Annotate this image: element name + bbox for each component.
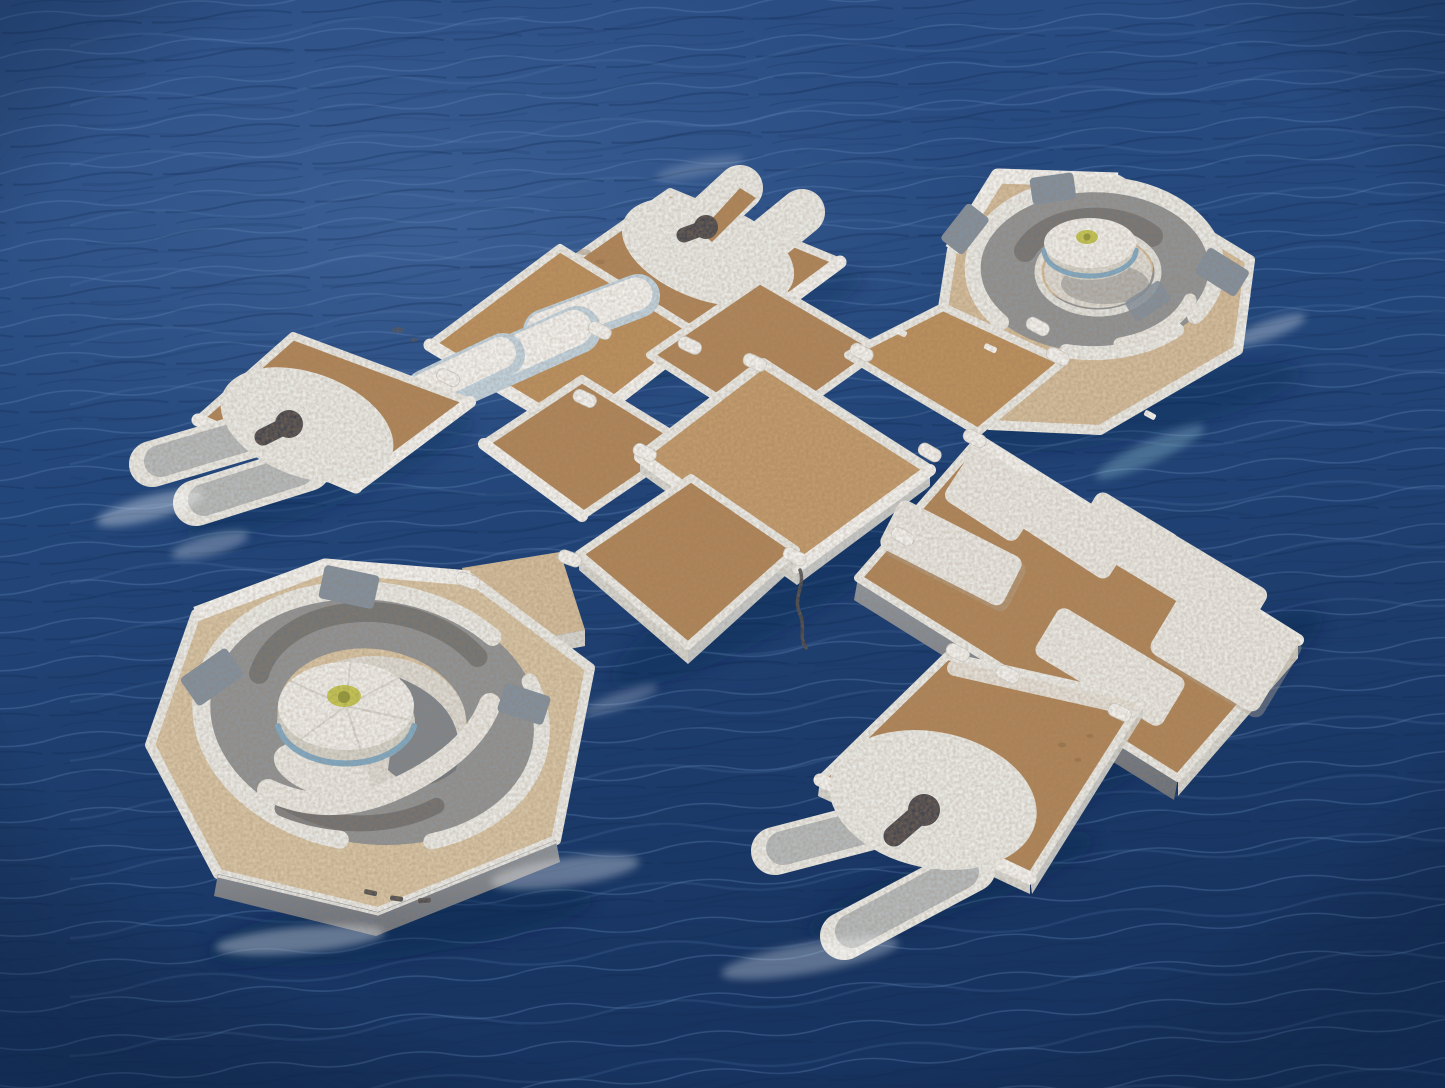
floating-island-photo: Aerial photo of a modular inflatable flo… <box>0 0 1445 1088</box>
photo-stage: Aerial photo of a modular inflatable flo… <box>0 0 1445 1088</box>
vignette <box>0 0 1445 1088</box>
